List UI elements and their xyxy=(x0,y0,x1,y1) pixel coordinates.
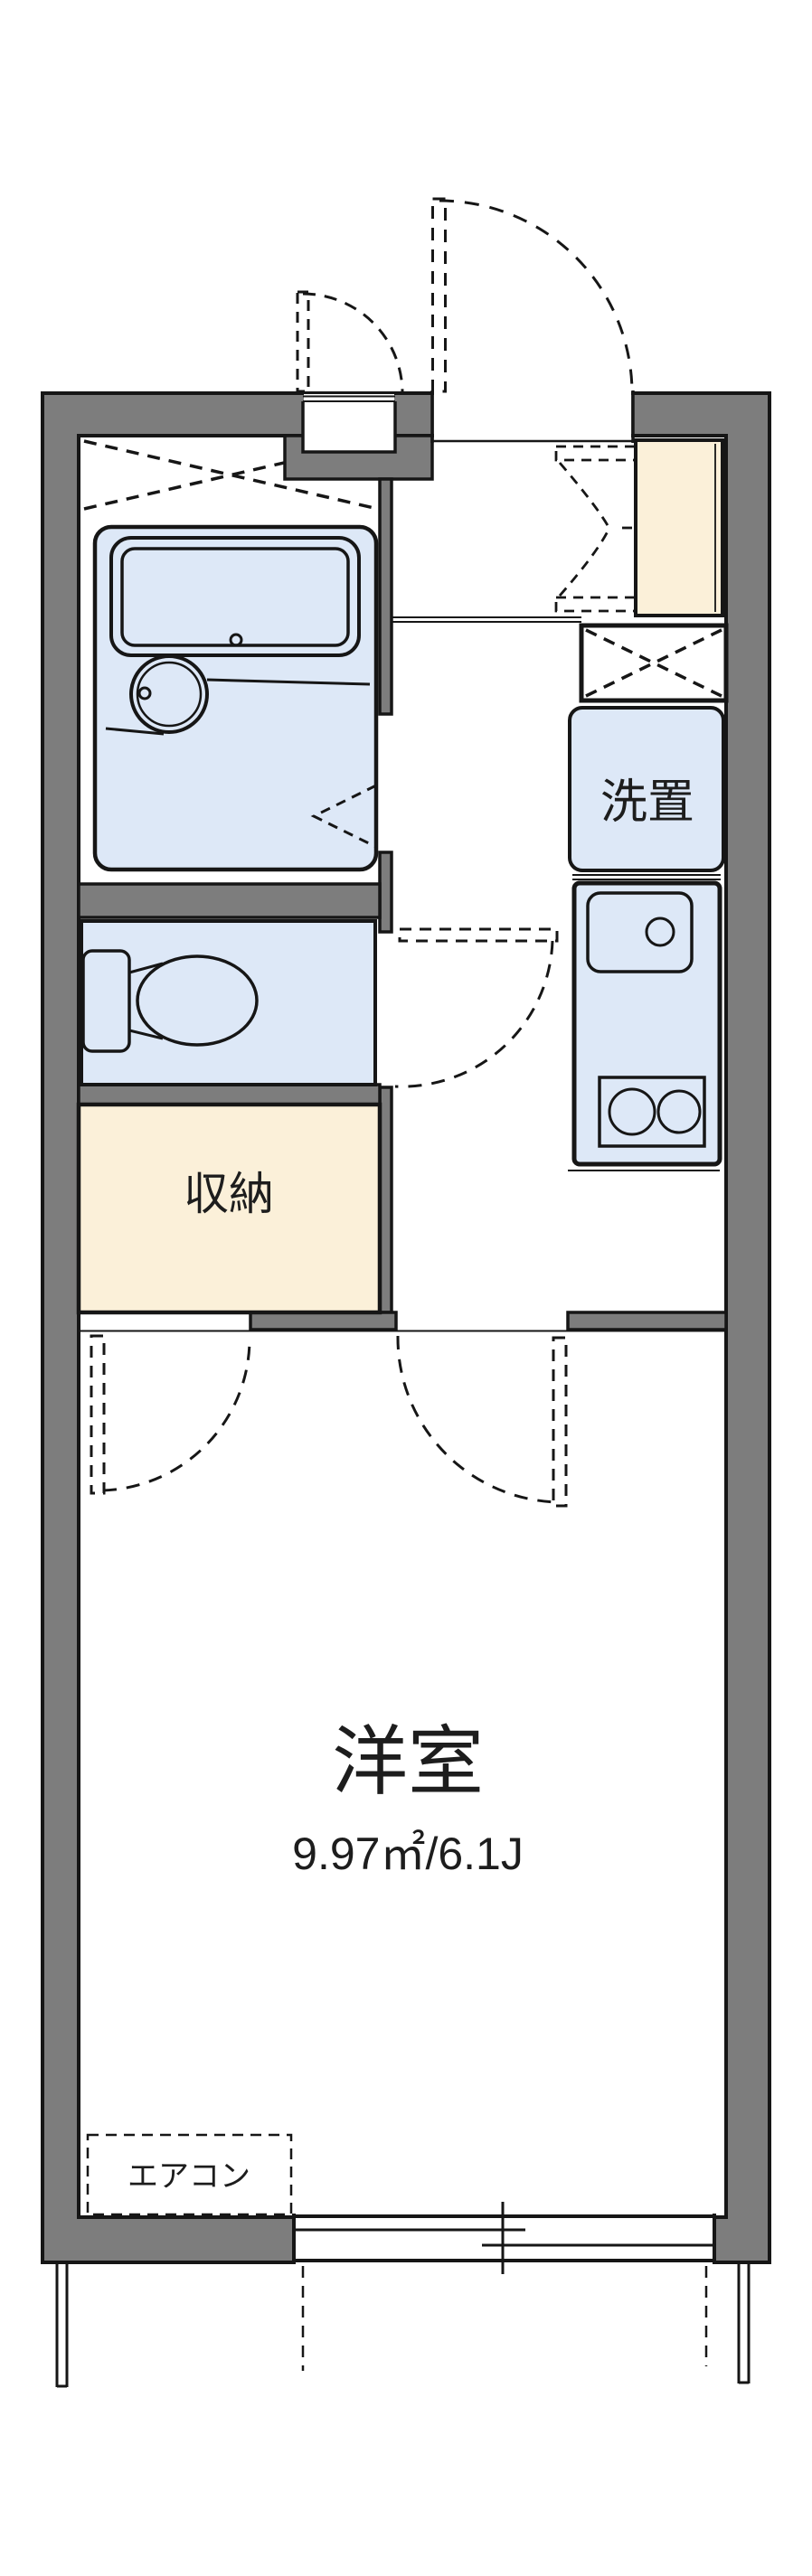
balcony-rails xyxy=(57,2262,749,2387)
hall-wall-mid xyxy=(380,852,392,932)
main-room-size-label: 9.97㎡/6.1J xyxy=(292,1829,524,1879)
niche-door-panel xyxy=(297,292,308,391)
room-wall-seg-mid xyxy=(250,1312,396,1330)
balcony-rail-left xyxy=(57,2262,67,2387)
shoe-cabinet xyxy=(636,440,722,616)
toilet-closet-wall xyxy=(79,1085,380,1105)
kitchen-counter-top-line xyxy=(572,875,721,879)
shoe-cabinet-doors xyxy=(556,447,638,611)
washer-space-label: 洗置 xyxy=(600,776,694,829)
pipe-space-box xyxy=(581,625,726,700)
entrance-opening xyxy=(434,390,631,442)
entrance-area xyxy=(392,440,726,700)
toilet-room xyxy=(81,921,375,1085)
aircon-unit: エアコン xyxy=(88,2135,291,2214)
entrance-door-panel xyxy=(433,199,446,391)
floor-plan-canvas: 収納 洗置 xyxy=(0,0,812,2576)
room-door-arc xyxy=(398,1336,559,1502)
niche-door-arc xyxy=(303,294,402,391)
kitchen xyxy=(568,875,721,1170)
closet: 収納 xyxy=(79,1105,380,1312)
balcony-rail-right xyxy=(739,2262,749,2383)
toilet-tank xyxy=(83,951,129,1051)
main-room: 洋室 9.97㎡/6.1J xyxy=(292,1719,524,1879)
floor-plan-drawing: 収納 洗置 xyxy=(0,0,812,2576)
cabinet-door-top xyxy=(556,447,636,460)
outdoor-niche-opening xyxy=(304,394,394,451)
toilet-bowl xyxy=(137,956,257,1045)
closet-label: 収納 xyxy=(184,1169,274,1219)
closet-door-arc xyxy=(103,1337,250,1490)
washbasin-outer xyxy=(131,656,207,732)
entrance-step-line xyxy=(392,617,581,622)
cabinet-door-bottom xyxy=(556,597,636,611)
main-window xyxy=(294,2202,714,2274)
bath-toilet-wall xyxy=(79,884,380,917)
aircon-label: エアコン xyxy=(127,2159,250,2194)
hall-wall-upper xyxy=(380,479,392,714)
unit-bath xyxy=(95,527,376,870)
room-door-panel xyxy=(553,1338,566,1506)
entrance-door-arc xyxy=(439,201,632,391)
washer-space: 洗置 xyxy=(570,708,723,870)
toilet-door-arc xyxy=(395,941,552,1086)
toilet-door-panel xyxy=(400,929,557,941)
main-room-label: 洋室 xyxy=(332,1719,484,1804)
cabinet-door-arc-top xyxy=(560,463,609,527)
cabinet-door-arc-bottom xyxy=(560,530,609,596)
closet-door-panel xyxy=(91,1336,104,1493)
pipe-space-outline xyxy=(581,625,726,700)
room-wall-seg-right xyxy=(568,1312,726,1330)
